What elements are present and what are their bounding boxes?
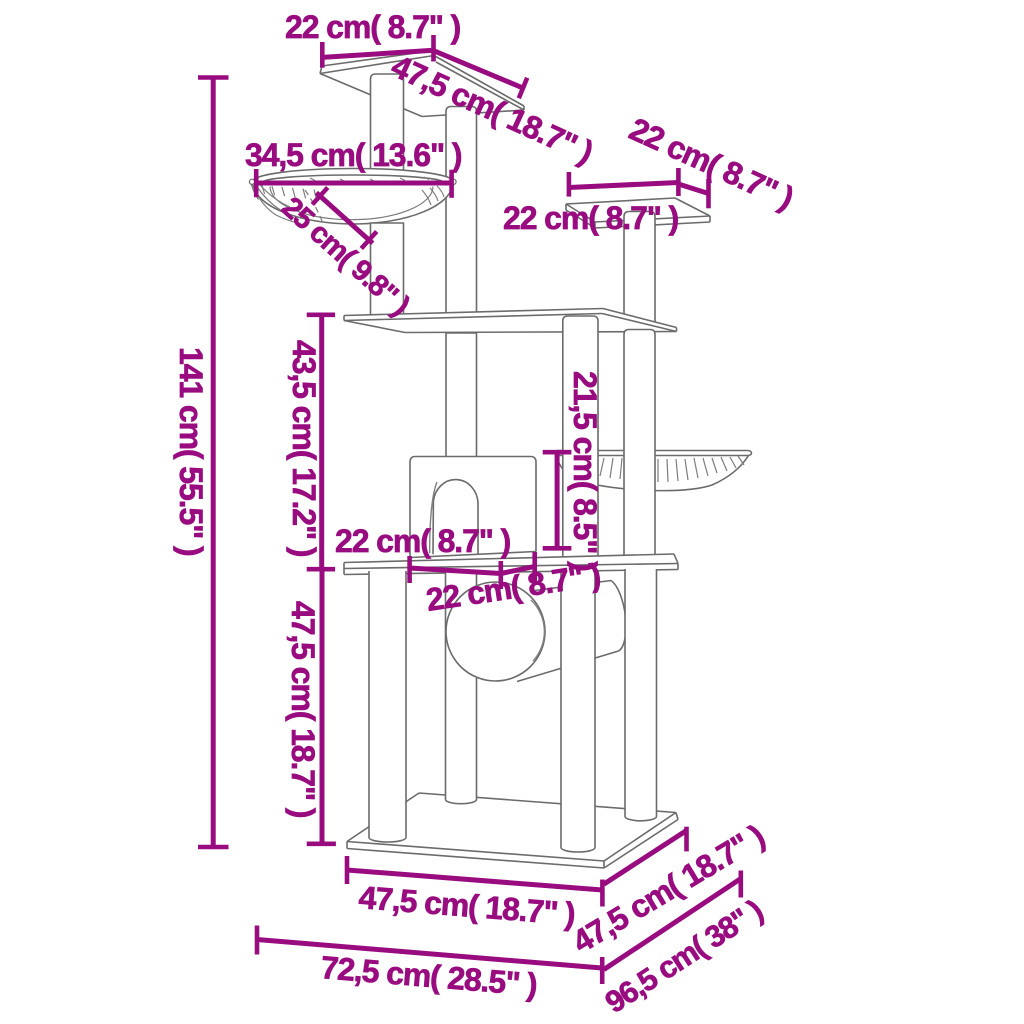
svg-text:47,5 cm( 18.7" ): 47,5 cm( 18.7" )	[285, 601, 321, 818]
svg-text:141 cm( 55.5" ): 141 cm( 55.5" )	[173, 347, 209, 556]
svg-text:22 cm( 8.7" ): 22 cm( 8.7" )	[285, 9, 461, 45]
svg-text:21,5 cm( 8.5" ): 21,5 cm( 8.5" )	[567, 371, 603, 571]
svg-text:43,5 cm( 17.2" ): 43,5 cm( 17.2" )	[286, 340, 322, 557]
svg-text:34,5 cm( 13.6" ): 34,5 cm( 13.6" )	[245, 137, 462, 173]
svg-text:22 cm( 8.7" ): 22 cm( 8.7" )	[503, 200, 679, 236]
svg-text:22 cm( 8.7" ): 22 cm( 8.7" )	[335, 523, 511, 559]
